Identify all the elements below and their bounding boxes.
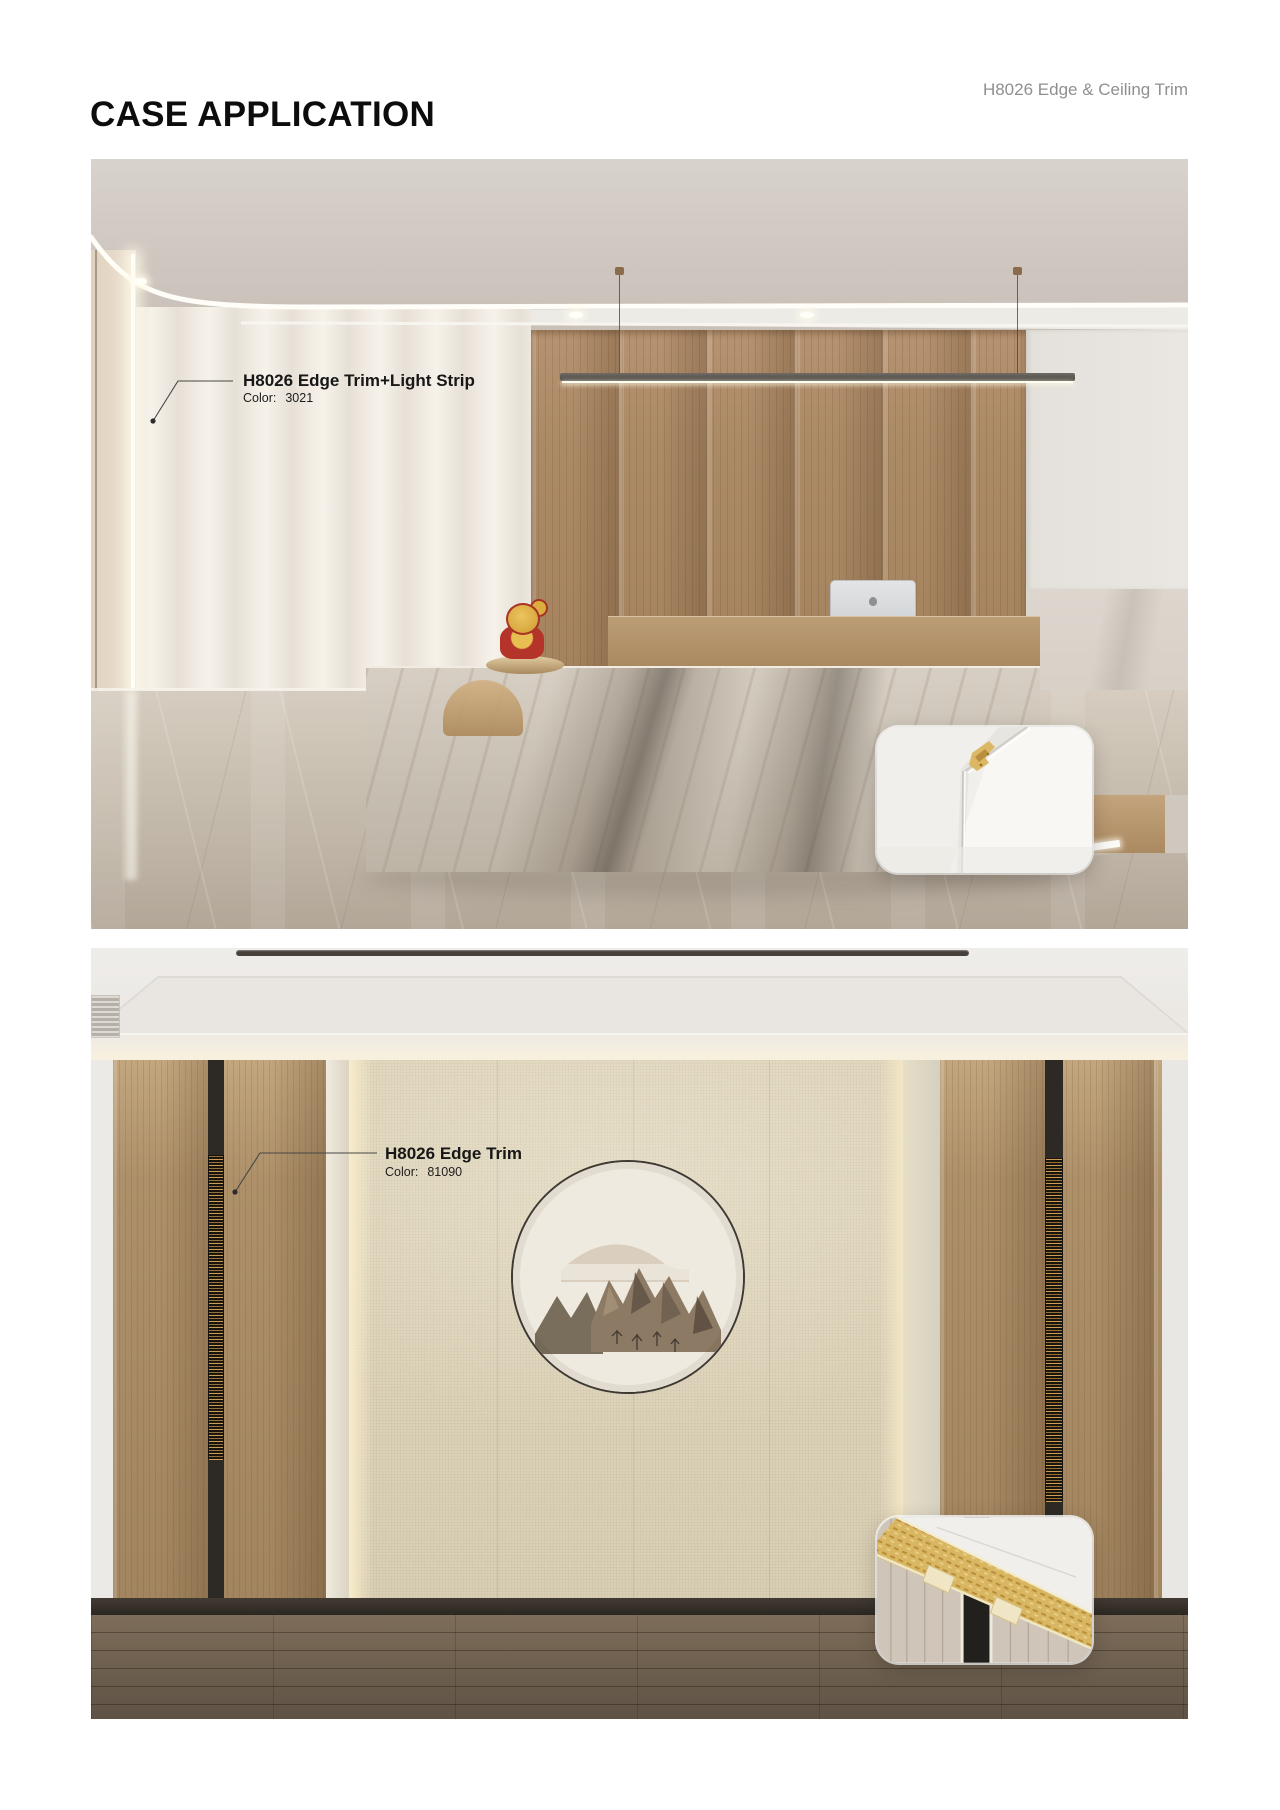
annotation-color: Color:81090	[385, 1165, 462, 1179]
pendant-wire	[619, 275, 620, 375]
wall-corner-seam	[95, 250, 97, 690]
right-wall	[1026, 330, 1188, 590]
dark-inlay-strip	[208, 1060, 224, 1610]
case-photo-feature-wall: H8026 Edge Trim Color:81090	[91, 948, 1188, 1719]
edge-trim-profile-closeup	[877, 1517, 1092, 1663]
left-wall-corner	[91, 1060, 113, 1610]
annotation-leader-line	[231, 1147, 381, 1199]
right-wall-corner	[1165, 795, 1188, 853]
annotation-color: Color:3021	[243, 391, 313, 405]
fret-pattern-inlay	[1045, 1158, 1063, 1502]
ink-mountains	[513, 1162, 743, 1392]
lucky-cat-figurine	[496, 599, 548, 661]
pendant-canopy	[1013, 267, 1022, 275]
fret-pattern-inlay	[208, 1155, 224, 1460]
edge-trim-light-strip	[131, 254, 135, 690]
right-wall-corner	[1162, 1060, 1188, 1610]
ink-painting	[511, 1160, 745, 1394]
edge-glow-left	[349, 1060, 373, 1610]
color-label: Color:	[243, 391, 276, 405]
detail-inset-edge-trim	[877, 1517, 1092, 1663]
downlight-icon	[133, 278, 147, 285]
annotation-label: H8026 Edge Trim+Light Strip	[243, 371, 475, 391]
pendant-light-glow	[562, 381, 1073, 383]
page-title: CASE APPLICATION	[90, 95, 435, 135]
desk-top-edge	[366, 666, 1040, 668]
linear-pendant-light	[560, 373, 1075, 381]
pendant-canopy	[615, 267, 624, 275]
air-vent-grille	[91, 995, 120, 1038]
case-photo-reception: H8026 Edge Trim+Light Strip Color:3021	[91, 159, 1188, 929]
panel-seam	[497, 1060, 498, 1610]
downlight-icon	[569, 312, 583, 318]
cove-light-curve	[91, 159, 1188, 330]
fluted-wall	[136, 307, 531, 690]
reception-counter-top	[608, 616, 1040, 669]
product-name: H8026 Edge & Ceiling Trim	[983, 80, 1188, 100]
light-strip-reflection	[125, 690, 137, 880]
ceiling-slot-diffuser	[236, 950, 969, 956]
pendant-wire	[1017, 275, 1018, 375]
apple-logo-icon	[869, 597, 877, 606]
color-value: 3021	[285, 391, 313, 405]
annotation-leader-line	[146, 374, 241, 429]
downlight-icon	[800, 312, 814, 318]
cove-light-glow	[91, 1034, 1188, 1060]
color-value: 81090	[427, 1165, 462, 1179]
detail-inset-trim-light	[877, 727, 1092, 873]
trim-profile-closeup	[877, 727, 1092, 873]
panel-seam	[769, 1060, 770, 1610]
panel-divider-trim	[326, 1060, 349, 1610]
annotation-label: H8026 Edge Trim	[385, 1144, 522, 1164]
color-label: Color:	[385, 1165, 418, 1179]
